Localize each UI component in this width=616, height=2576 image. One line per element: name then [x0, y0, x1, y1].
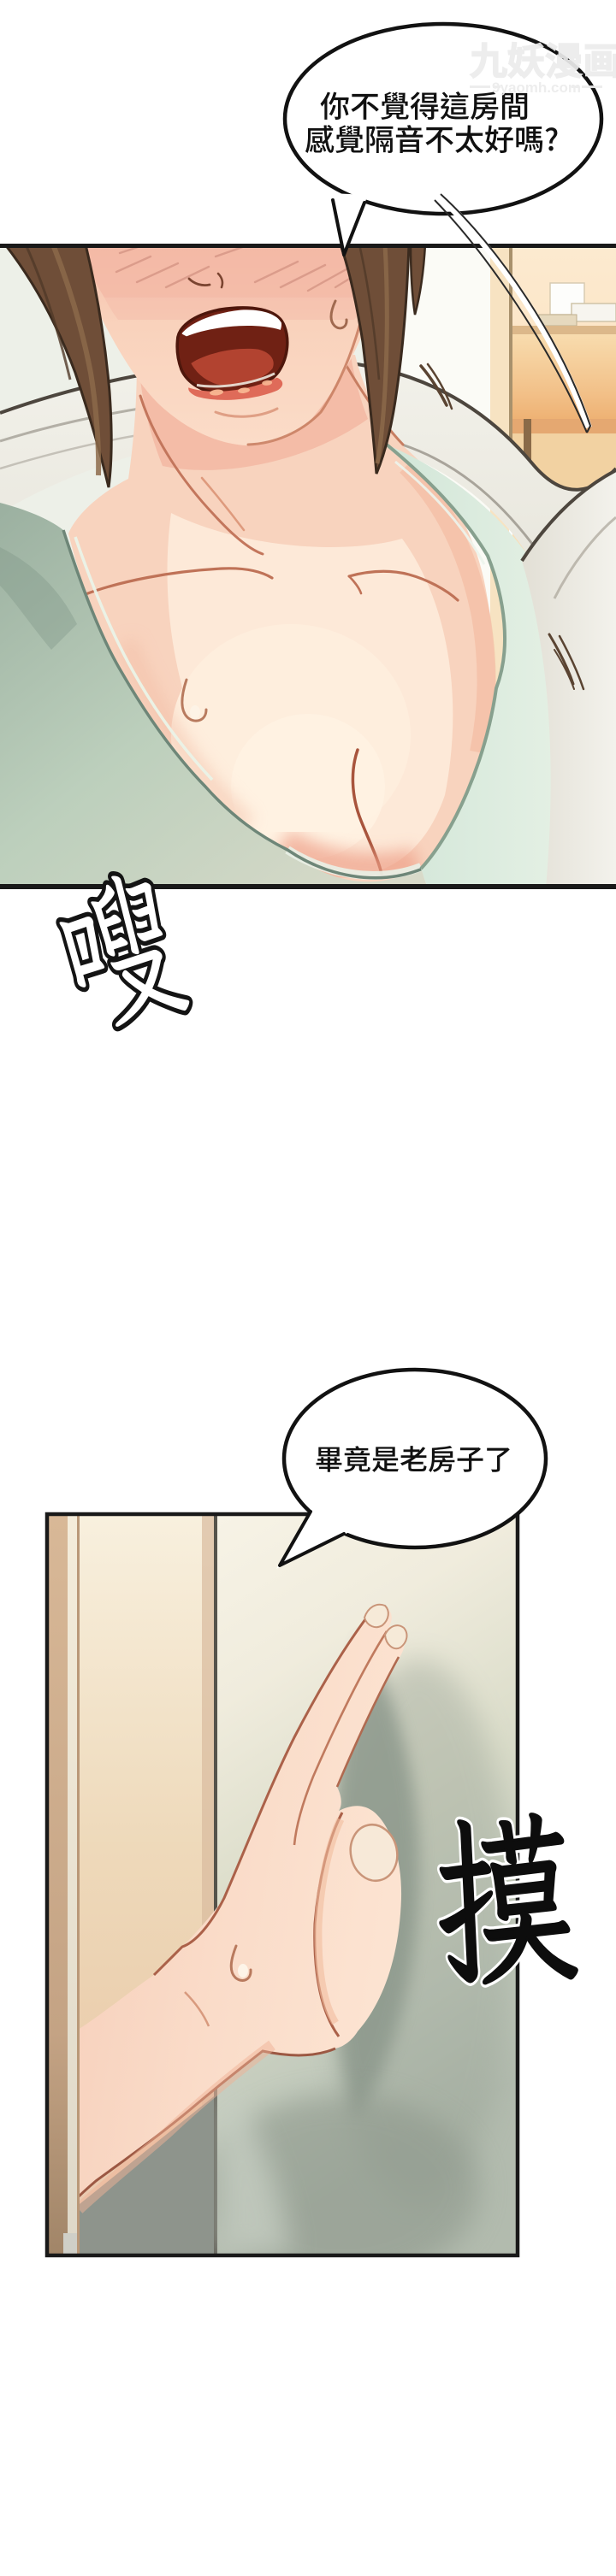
svg-text:9yaomh.com: 9yaomh.com [492, 80, 581, 96]
